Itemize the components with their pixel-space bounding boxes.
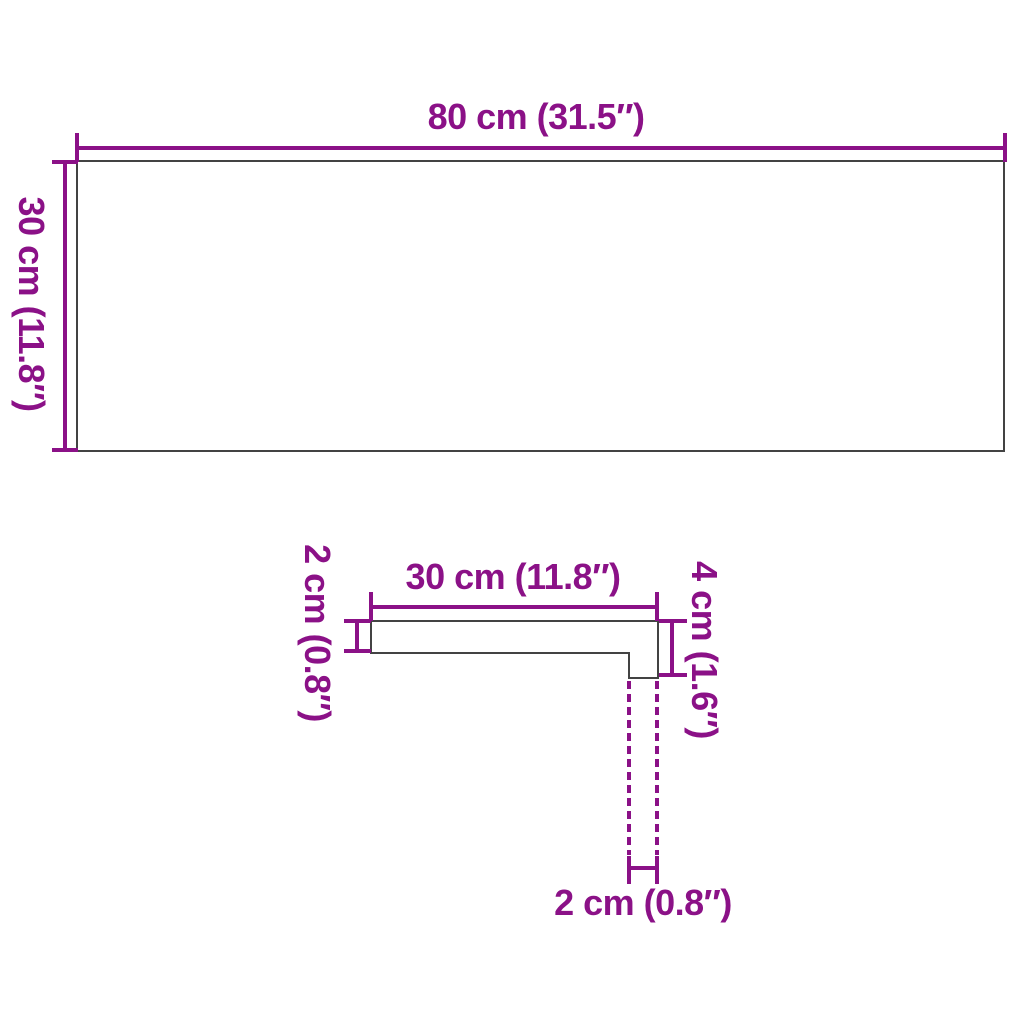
panel-side-profile-outline — [370, 620, 661, 680]
height-dimension-tick-top — [52, 160, 78, 164]
profile-outline-path — [371, 621, 658, 678]
panel-top-view-outline — [76, 160, 1005, 452]
depth-dimension-label: 30 cm (11.8″) — [406, 559, 621, 595]
depth-dimension-tick-left — [369, 592, 373, 621]
thickness-dimension-label: 2 cm (0.8″) — [299, 544, 335, 722]
nose-height-dimension-tick-bottom — [659, 673, 687, 677]
nose-height-dimension-line — [670, 621, 674, 677]
nose-height-dimension-tick-top — [659, 619, 687, 623]
width-dimension-line — [77, 146, 1005, 150]
height-dimension-label: 30 cm (11.8″) — [13, 197, 49, 412]
projection-line-left — [627, 681, 631, 855]
dimension-diagram: 80 cm (31.5″) 30 cm (11.8″) 30 cm (11.8″… — [0, 0, 1024, 1024]
projection-line-right — [655, 681, 659, 855]
width-dimension-tick-left — [75, 133, 79, 162]
nose-depth-dimension-tick-right — [655, 856, 659, 884]
width-dimension-tick-right — [1003, 133, 1007, 162]
thickness-dimension-tick-top — [344, 619, 371, 623]
thickness-dimension-line — [355, 621, 359, 652]
thickness-dimension-tick-bottom — [344, 649, 371, 653]
nose-depth-dimension-tick-left — [627, 856, 631, 884]
height-dimension-tick-bottom — [52, 448, 78, 452]
nose-depth-dimension-label: 2 cm (0.8″) — [554, 885, 732, 921]
nose-height-dimension-label: 4 cm (1.6″) — [686, 561, 722, 739]
depth-dimension-line — [371, 605, 657, 609]
depth-dimension-tick-right — [655, 592, 659, 621]
width-dimension-label: 80 cm (31.5″) — [428, 99, 645, 135]
height-dimension-line — [63, 162, 67, 451]
nose-depth-dimension-line — [629, 866, 657, 870]
